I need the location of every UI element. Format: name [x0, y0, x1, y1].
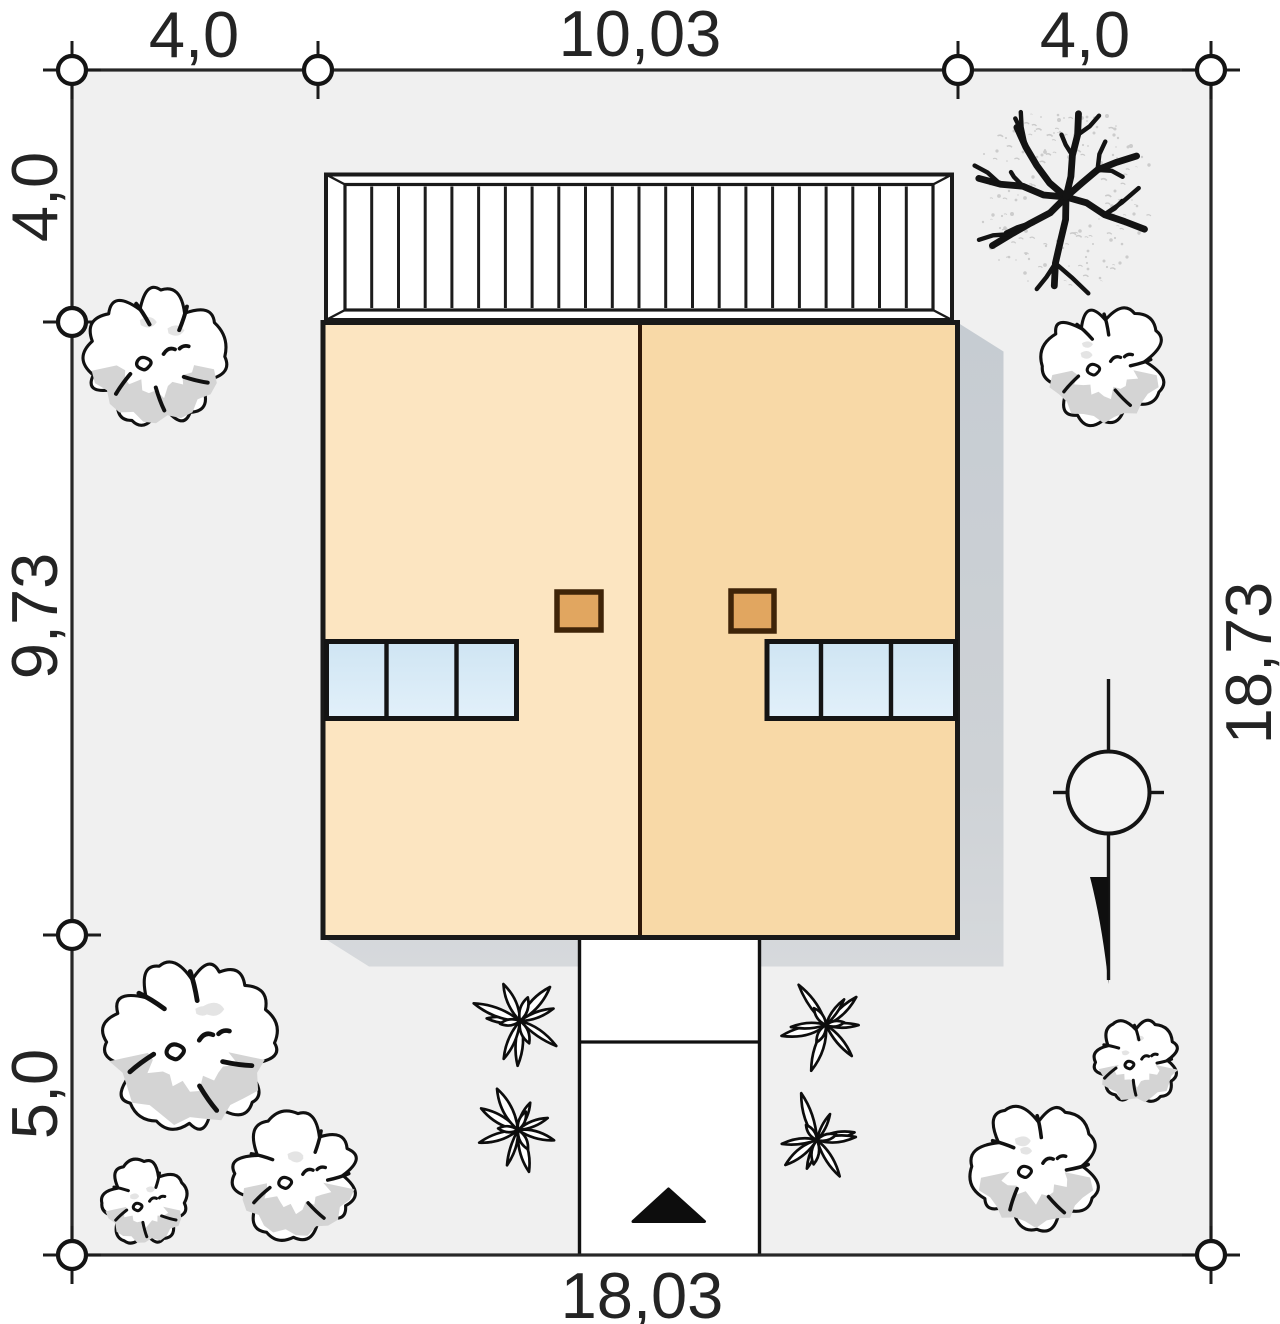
svg-text:4,0: 4,0 — [149, 0, 239, 71]
svg-text:4,0: 4,0 — [0, 152, 71, 242]
svg-text:4,0: 4,0 — [1040, 0, 1130, 71]
svg-text:5,0: 5,0 — [0, 1049, 71, 1139]
svg-text:9,73: 9,73 — [0, 553, 71, 680]
svg-text:10,03: 10,03 — [559, 0, 722, 70]
svg-text:18,73: 18,73 — [1212, 582, 1280, 745]
svg-text:18,03: 18,03 — [561, 1259, 724, 1324]
